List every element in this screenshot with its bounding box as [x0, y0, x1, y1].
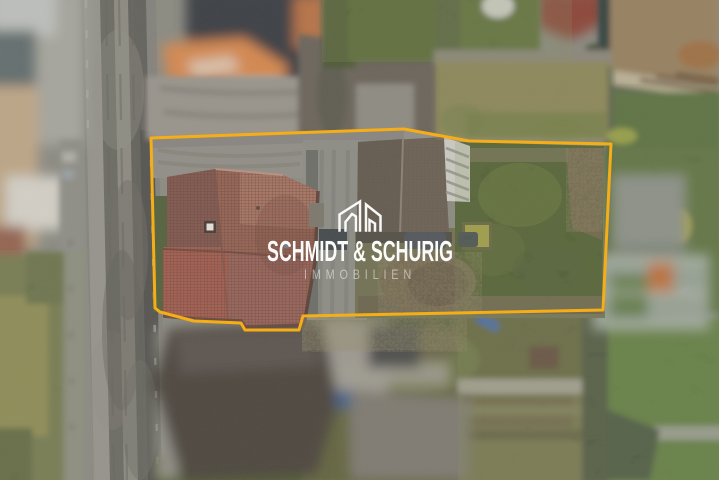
svg-text:SCHMIDT & SCHURIG: SCHMIDT & SCHURIG [267, 236, 453, 268]
svg-text:IMMOBILIEN: IMMOBILIEN [304, 267, 416, 282]
